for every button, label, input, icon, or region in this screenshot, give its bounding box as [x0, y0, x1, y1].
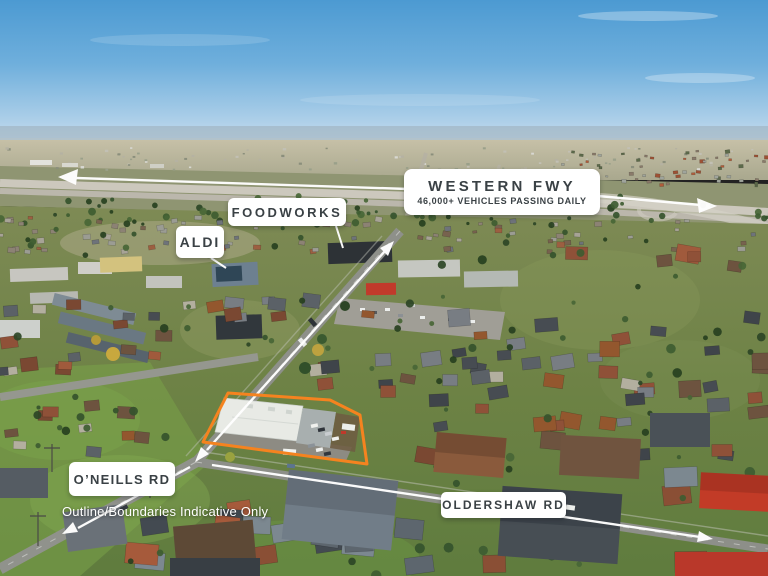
aldi-label-text: ALDI — [180, 234, 221, 250]
oneills-arrowhead-icon — [62, 522, 78, 534]
freeway-west-arrow — [76, 178, 408, 189]
western-fwy-title: WESTERN FWY — [428, 178, 576, 195]
freeway-east-arrow — [598, 196, 701, 205]
oneills-rd-label: O’NEILLS RD — [69, 462, 175, 496]
aldi-leader-line — [211, 258, 226, 268]
oneills-rd-label-text: O’NEILLS RD — [74, 472, 171, 487]
foodworks-label-text: FOODWORKS — [232, 205, 343, 220]
western-fwy-label: WESTERN FWY 46,000+ VEHICLES PASSING DAI… — [404, 169, 600, 215]
oldershaw-rd-label: OLDERSHAW RD — [441, 492, 566, 518]
oldershaw-arrowhead-icon — [697, 531, 713, 542]
foodworks-label: FOODWORKS — [228, 198, 346, 226]
connector-road-arrow — [207, 251, 385, 450]
foodworks-leader-line — [336, 226, 343, 248]
freeway-east-arrowhead-icon — [697, 198, 717, 213]
western-fwy-subtitle: 46,000+ VEHICLES PASSING DAILY — [417, 196, 586, 206]
oldershaw-rd-label-text: OLDERSHAW RD — [442, 498, 565, 512]
aldi-label: ALDI — [176, 226, 224, 258]
disclaimer-text: Outline/Boundaries Indicative Only — [62, 504, 268, 519]
freeway-west-arrowhead-icon — [58, 169, 78, 185]
aerial-marketing-image: WESTERN FWY 46,000+ VEHICLES PASSING DAI… — [0, 0, 768, 576]
